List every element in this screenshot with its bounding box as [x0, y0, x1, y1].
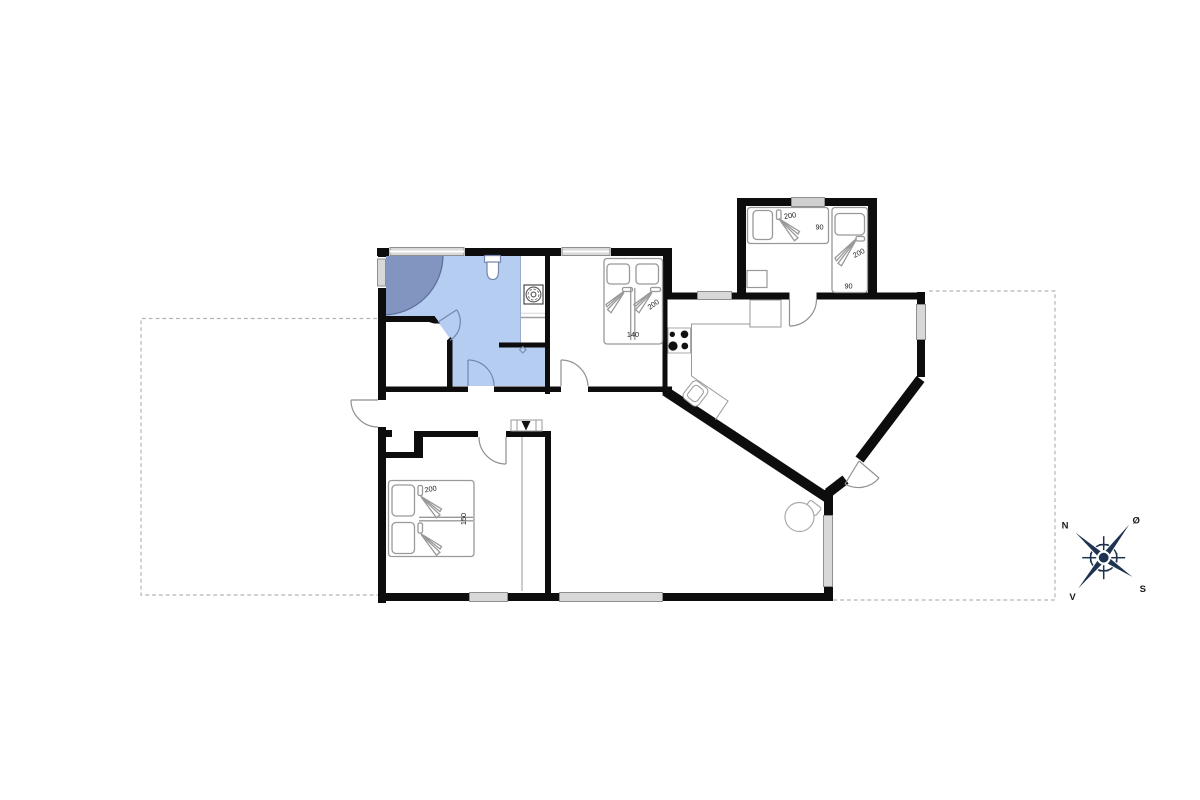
- svg-text:90: 90: [844, 282, 852, 291]
- svg-text:90: 90: [815, 223, 823, 232]
- svg-text:Ø: Ø: [1133, 516, 1140, 527]
- svg-text:200: 200: [783, 210, 796, 221]
- svg-text:N: N: [1062, 520, 1069, 531]
- svg-text:140: 140: [627, 330, 639, 339]
- svg-text:150: 150: [459, 513, 468, 525]
- svg-text:S: S: [1140, 584, 1146, 595]
- svg-text:V: V: [1069, 592, 1076, 603]
